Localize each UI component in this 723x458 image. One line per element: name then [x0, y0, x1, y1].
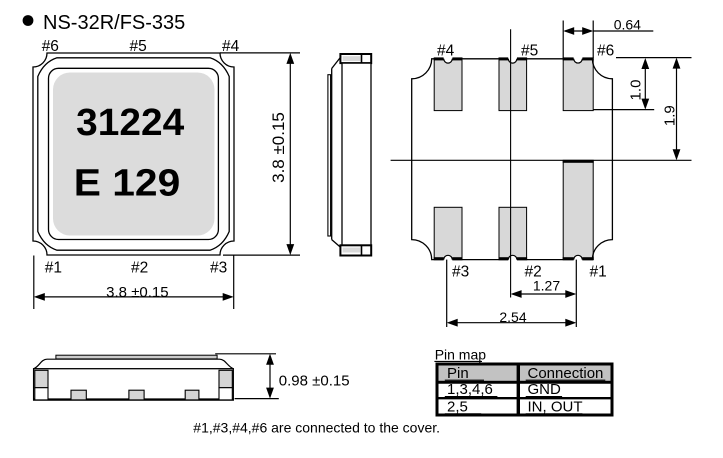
- svg-text:#1: #1: [45, 260, 62, 277]
- svg-text:#1: #1: [590, 264, 607, 281]
- svg-text:Pin map: Pin map: [435, 346, 487, 362]
- svg-text:Pin: Pin: [447, 365, 469, 382]
- svg-text:#3: #3: [452, 264, 469, 281]
- svg-text:0.64: 0.64: [614, 17, 641, 33]
- svg-text:#6: #6: [42, 38, 59, 55]
- svg-text:NS-32R/FS-335: NS-32R/FS-335: [43, 12, 185, 34]
- svg-text:#3: #3: [210, 260, 227, 277]
- svg-text:0.98 ±0.15: 0.98 ±0.15: [279, 372, 350, 389]
- svg-text:#6: #6: [597, 43, 614, 60]
- svg-text:1,3,4,6: 1,3,4,6: [447, 381, 493, 398]
- svg-text:#5: #5: [130, 38, 147, 55]
- svg-text:2,5: 2,5: [447, 399, 468, 416]
- svg-text:1.27: 1.27: [533, 277, 560, 293]
- svg-text:GND: GND: [528, 381, 562, 398]
- svg-text:IN, OUT: IN, OUT: [528, 399, 583, 416]
- svg-text:E 129: E 129: [74, 163, 181, 205]
- svg-text:#2: #2: [131, 260, 148, 277]
- svg-text:Connection: Connection: [528, 365, 604, 382]
- svg-text:31224: 31224: [76, 102, 184, 144]
- svg-text:#4: #4: [437, 43, 455, 60]
- svg-text:1.0: 1.0: [628, 80, 645, 101]
- svg-text:1.9: 1.9: [662, 105, 679, 126]
- svg-text:#5: #5: [521, 43, 538, 60]
- svg-text:3.8 ±0.15: 3.8 ±0.15: [106, 284, 168, 301]
- svg-text:#1,#3,#4,#6 are connected to t: #1,#3,#4,#6 are connected to the cover.: [193, 420, 440, 436]
- svg-text:2.54: 2.54: [499, 309, 526, 325]
- svg-text:3.8 ±0.15: 3.8 ±0.15: [269, 112, 288, 183]
